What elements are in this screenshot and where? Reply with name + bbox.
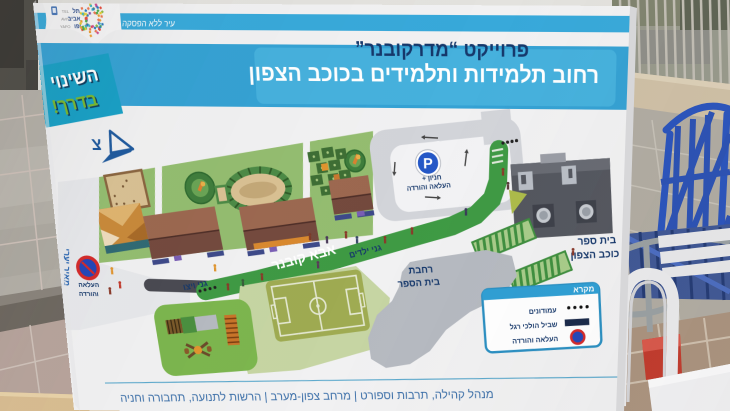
svg-text:עמודונים: עמודונים <box>529 306 557 316</box>
svg-text:כוכב הצפון: כוכב הצפון <box>570 248 619 261</box>
svg-text:צ: צ <box>91 134 103 154</box>
svg-text:והורדה: והורדה <box>78 289 99 298</box>
svg-text:רחוב תלמידות ותלמידים בכוכב הצ: רחוב תלמידות ותלמידים בכוכב הצפון <box>248 60 600 88</box>
svg-text:מאיר יערי: מאיר יערי <box>62 248 71 287</box>
svg-text:עיר ללא הפסקה: עיר ללא הפסקה <box>122 18 176 29</box>
svg-text:העלאה: העלאה <box>78 280 100 289</box>
svg-text:YAFO: YAFO <box>60 24 72 29</box>
svg-text:‏פרוייקט “מדרקובנר”‏: ‏פרוייקט “מדרקובנר”‏ <box>355 38 529 62</box>
svg-text:P: P <box>423 156 433 173</box>
svg-text:תל: תל <box>72 7 80 15</box>
svg-text:בית ספר: בית ספר <box>577 235 616 248</box>
svg-text:AVIV: AVIV <box>61 16 70 21</box>
svg-text:רחבת: רחבת <box>408 265 433 277</box>
svg-text:מקרא: מקרא <box>573 284 595 295</box>
svg-text:TEL: TEL <box>62 9 70 14</box>
